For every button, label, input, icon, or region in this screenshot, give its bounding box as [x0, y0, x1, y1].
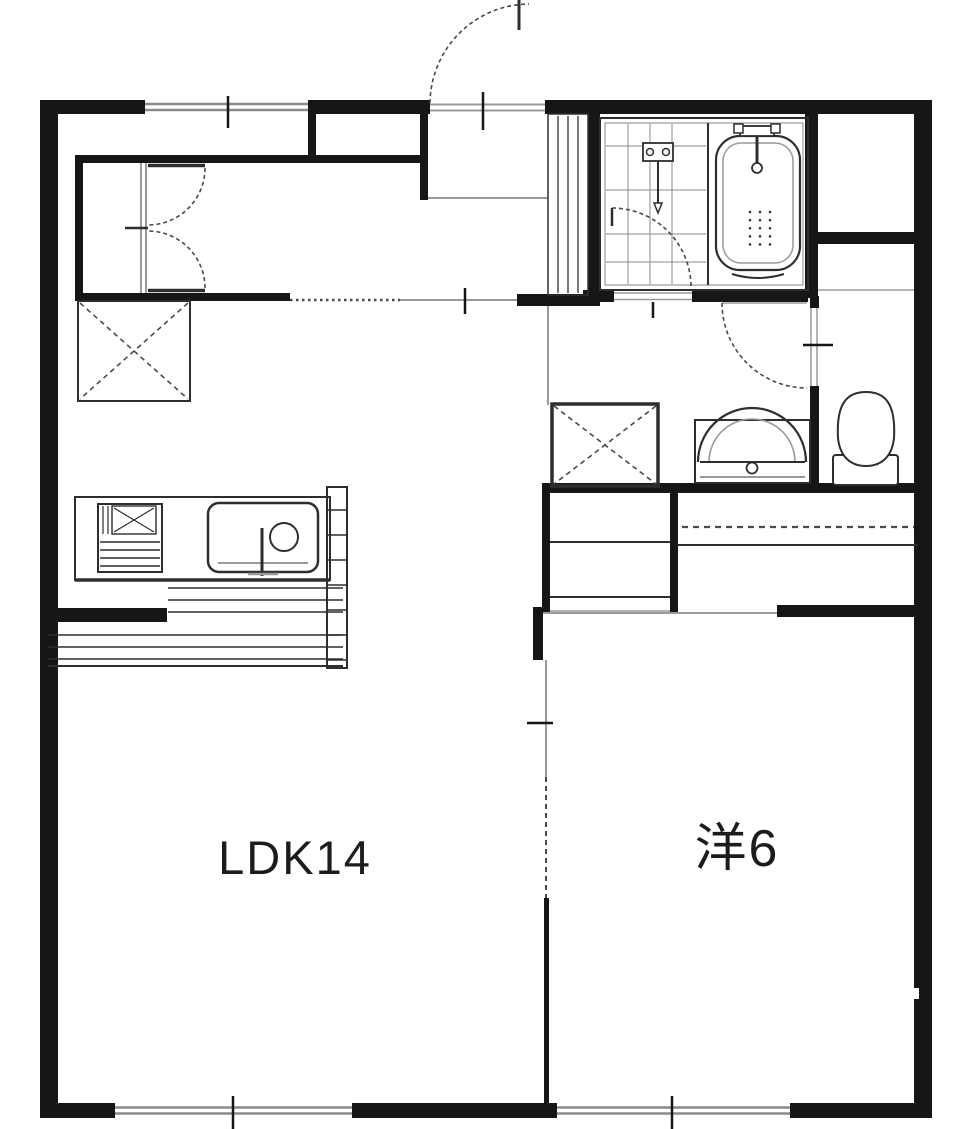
wall-right — [914, 100, 932, 1118]
bathroom — [600, 118, 808, 318]
washbasin-bowl-inner — [709, 419, 795, 462]
bathtub-handle-right — [771, 124, 780, 133]
shower-head — [654, 203, 662, 213]
wall-closet-left — [75, 163, 83, 300]
wall-partition-stub — [533, 607, 543, 660]
wall-closetstrip-divider — [670, 493, 678, 612]
bathtub-foot-arc — [732, 274, 784, 278]
wall-bedroom-topright — [777, 605, 918, 617]
wall-closet-top — [75, 155, 428, 163]
entrance-gap — [430, 100, 545, 114]
wall-closetstrip-left — [542, 493, 550, 612]
bedroom-window-gap — [557, 1103, 790, 1118]
washbasin-bowl-outer — [698, 408, 806, 462]
bedroom-closet — [550, 527, 918, 597]
wall-toilet-top-stub — [810, 296, 819, 308]
kitchen-stripes-lower — [48, 635, 343, 659]
toilet-doorway-lines — [811, 306, 817, 388]
opening-lines — [290, 198, 914, 898]
bathroom-door-arc-icon — [612, 208, 691, 287]
wall-partition-lower — [544, 898, 549, 1104]
washroom — [552, 303, 810, 486]
windows — [115, 100, 790, 1118]
wall-kitchen-stub — [42, 608, 167, 622]
wall-toilet-lower — [810, 386, 819, 493]
floor-plan: LDK14 洋6 — [0, 0, 960, 1129]
room-labels: LDK14 洋6 — [218, 820, 779, 884]
refrigerator-space — [78, 301, 190, 401]
wall-ps-right-divider — [818, 232, 918, 244]
refrigerator-x-icon — [80, 303, 188, 399]
washbasin-drain — [747, 463, 758, 474]
wall-notch — [914, 988, 919, 999]
closet-door-leaves-icon — [148, 166, 205, 291]
toilet-bowl-icon — [838, 392, 894, 466]
toilet-room — [833, 392, 898, 485]
western-room-label: 洋6 — [695, 820, 780, 878]
top-window-gap — [145, 100, 308, 114]
wall-bathroom-left — [588, 113, 600, 295]
wall-ps-left — [308, 114, 316, 163]
kitchen — [48, 487, 347, 668]
wall-entrance-left — [420, 114, 428, 200]
entrance-door-arc-icon — [430, 4, 529, 103]
bathtub-handle-left — [734, 124, 743, 133]
shower-mixer-icon — [643, 143, 673, 161]
bath-threshold-lines — [614, 293, 692, 300]
floor-plan-canvas: LDK14 洋6 — [0, 0, 960, 1129]
closet-strip-dividers — [550, 542, 670, 597]
entrance — [430, 0, 545, 114]
ldk-closet — [125, 163, 205, 293]
washing-machine-x-icon — [554, 406, 656, 484]
bathtub-faucet-bar — [740, 126, 774, 136]
toilet-door-arc-icon — [722, 303, 807, 388]
closet-door-arcs-icon — [148, 168, 205, 288]
wall-bathroom-right — [805, 113, 818, 298]
wall-left — [40, 100, 58, 1118]
kitchen-stripes-upper — [168, 588, 343, 612]
shoe-cabinet — [548, 114, 588, 295]
shoe-cabinet-lines — [558, 116, 578, 293]
wall-closet-bottom — [75, 293, 290, 301]
wall-bath-bottom-right — [692, 290, 808, 302]
ldk-label: LDK14 — [218, 831, 372, 884]
